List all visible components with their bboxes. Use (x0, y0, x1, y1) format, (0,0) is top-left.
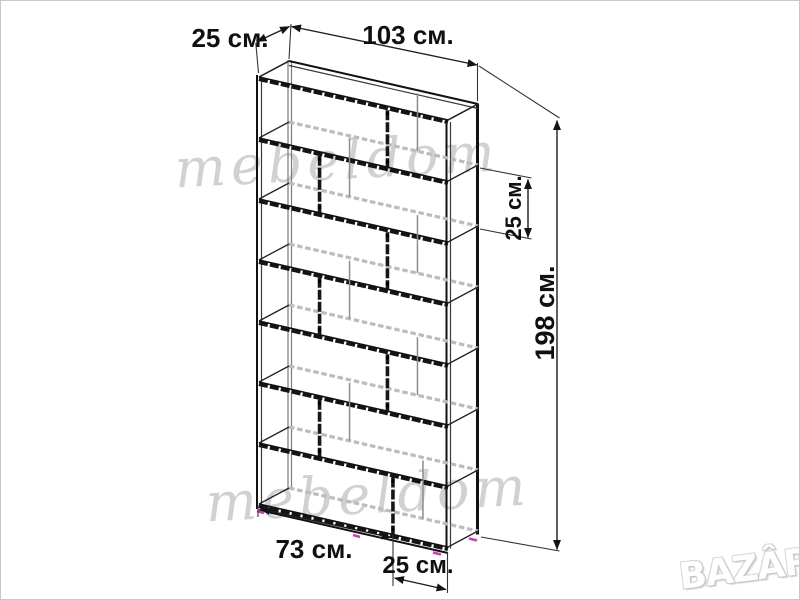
shelf-front-band (259, 201, 448, 244)
shelf-front-edge (259, 321, 448, 364)
connector-dot (386, 160, 389, 163)
shelf-front-edge (259, 382, 448, 425)
connector-dot (386, 282, 389, 285)
connector-dot (391, 479, 394, 482)
height-label: 198 см. (530, 265, 560, 360)
width-top-label: 103 см. (362, 20, 454, 50)
dimension-width-top: 103 см. (292, 20, 478, 101)
shelf-front-band (259, 79, 448, 122)
connector-dot (318, 206, 321, 209)
shelf-right-depth-edge (448, 348, 478, 364)
top-back-edge (289, 61, 478, 104)
shelf-left-depth-edge (259, 61, 289, 77)
connector-dot (318, 280, 321, 283)
shelf-right-depth-edge (448, 104, 478, 120)
shelf-back-edge (289, 305, 478, 348)
connector-dot (386, 234, 389, 237)
shelf-front-band (259, 323, 448, 366)
bottom-right-section-label: 25 см. (382, 552, 453, 579)
shelf-front-edge (259, 77, 448, 120)
connector-dot (386, 404, 389, 407)
dimension-bottom-right: 25 см. (382, 552, 453, 593)
furniture-diagram: mebeldom mebeldom (1, 1, 800, 600)
shelf-front-band (259, 262, 448, 305)
connector-dot (318, 402, 321, 405)
drawing-canvas: mebeldom mebeldom (0, 0, 800, 600)
top-back-edge-inner (289, 66, 478, 109)
shelf-left-depth-edge (259, 244, 289, 260)
connector-dot (386, 356, 389, 359)
shelf-back-edge (289, 366, 478, 409)
shelf-spacing-label: 25 см. (501, 175, 526, 240)
dimension-depth-top: 25 см. (191, 23, 291, 73)
shelf-left-depth-edge (259, 366, 289, 382)
shelf-front-band (259, 384, 448, 427)
dimension-line (395, 578, 447, 590)
shelf-left-depth-edge (259, 427, 289, 443)
shelf-right-depth-edge (448, 287, 478, 303)
shelf-front-edge (259, 260, 448, 303)
connector-dot (386, 112, 389, 115)
connector-dot (318, 158, 321, 161)
pink-mark (469, 539, 477, 541)
bottom-left-section-label: 73 см. (275, 534, 352, 564)
shelf-back-edge (289, 244, 478, 287)
extension-line (481, 537, 560, 551)
connector-dot (391, 527, 394, 530)
shelf-front-edge (259, 199, 448, 242)
depth-top-label: 25 см. (191, 23, 268, 53)
extension-line (479, 66, 560, 118)
shelf-right-depth-edge (448, 409, 478, 425)
pink-mark (353, 535, 360, 537)
connector-dot (318, 450, 321, 453)
shelf-right-depth-edge (448, 226, 478, 242)
extension-line (289, 24, 291, 59)
connector-dot (318, 328, 321, 331)
shelf-left-depth-edge (259, 305, 289, 321)
watermark-script-bottom: mebeldom (204, 455, 532, 535)
